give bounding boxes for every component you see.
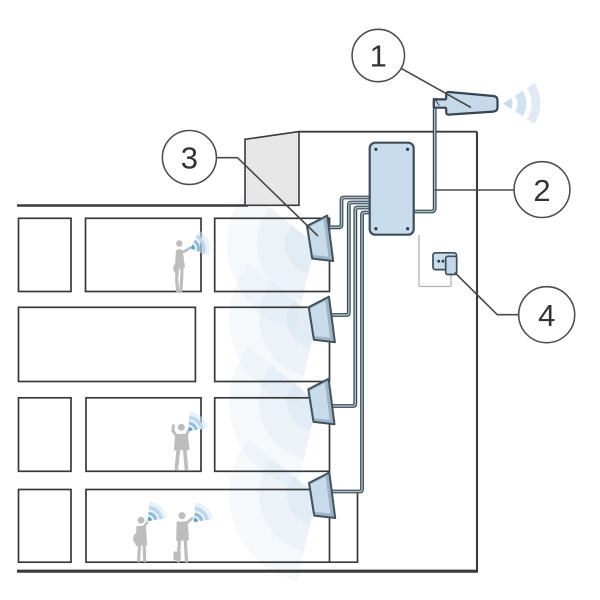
svg-text:1: 1 [370,39,387,74]
svg-text:2: 2 [533,173,550,208]
svg-text:4: 4 [538,298,555,333]
svg-text:3: 3 [181,141,198,176]
